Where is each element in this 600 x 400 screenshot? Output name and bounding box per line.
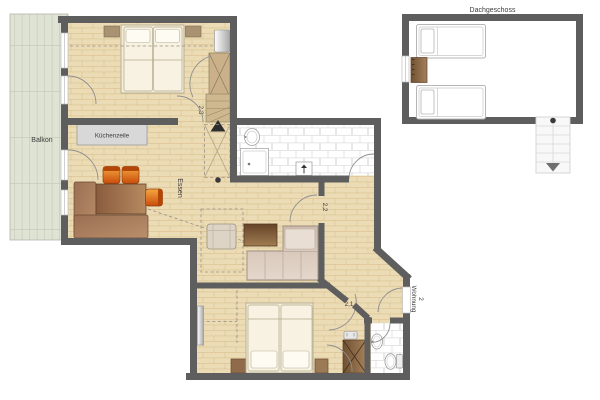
double-bed bbox=[246, 303, 313, 373]
pillow bbox=[156, 30, 180, 43]
apartment-number: 2 bbox=[417, 297, 424, 301]
wardrobe-icon bbox=[343, 340, 366, 373]
nightstand bbox=[104, 26, 120, 37]
dresser bbox=[411, 58, 427, 83]
dining-chair bbox=[146, 189, 163, 206]
dining-label: Essen bbox=[176, 178, 183, 198]
kitchenette: Küchenzeile bbox=[77, 125, 147, 146]
stairs-down bbox=[536, 117, 570, 173]
stair-marker-dot bbox=[215, 177, 221, 183]
shower-icon bbox=[241, 149, 269, 176]
wardrobe-icon bbox=[209, 53, 230, 97]
pillow bbox=[421, 29, 434, 53]
dresser bbox=[315, 359, 328, 373]
radiator-icon bbox=[198, 306, 204, 345]
pillow bbox=[283, 351, 309, 368]
single-bed bbox=[417, 86, 486, 120]
kitchenette-label: Küchenzeile bbox=[95, 133, 130, 140]
single-bed bbox=[417, 25, 486, 59]
stair-marker-dot bbox=[550, 118, 556, 124]
vanity-sink-icon bbox=[344, 332, 357, 340]
double-bed bbox=[121, 25, 184, 93]
attic: Dachgeschoss bbox=[402, 7, 583, 173]
dining-chair bbox=[103, 167, 120, 184]
pillow bbox=[251, 351, 277, 368]
washing-machine-icon bbox=[296, 162, 312, 176]
pillow bbox=[126, 30, 150, 43]
dining-chair bbox=[122, 167, 139, 184]
corner-bench bbox=[74, 215, 148, 238]
pillow bbox=[421, 90, 434, 114]
entry-door-opening bbox=[403, 287, 411, 313]
balcony-deck bbox=[10, 14, 68, 240]
balcony-label: Balkon bbox=[31, 137, 53, 144]
apartment-entrance: Wohnung 2 bbox=[403, 286, 425, 313]
sink-icon bbox=[245, 129, 260, 146]
radiator-icon bbox=[215, 30, 231, 52]
room-number: 2,2 bbox=[321, 203, 328, 212]
sideboard bbox=[244, 224, 277, 246]
apartment-label: Wohnung bbox=[410, 286, 417, 313]
attic-title: Dachgeschoss bbox=[470, 7, 516, 14]
balcony: Balkon bbox=[10, 14, 68, 240]
floor-plan: Balkon Essen Küchenzeile bbox=[0, 0, 600, 400]
dining-table bbox=[96, 184, 146, 214]
nightstand bbox=[186, 26, 202, 37]
floor-plan-drawing: Balkon Essen Küchenzeile bbox=[0, 0, 600, 400]
armchair bbox=[207, 224, 236, 249]
toilet-icon bbox=[385, 354, 403, 370]
